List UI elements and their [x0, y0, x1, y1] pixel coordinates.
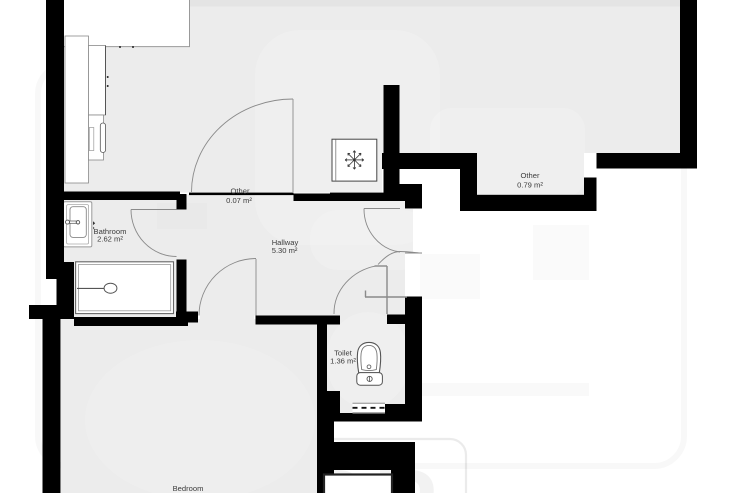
svg-text:0.07 m²: 0.07 m² [226, 196, 252, 205]
svg-text:0.79 m²: 0.79 m² [517, 181, 543, 190]
svg-text:5.30 m²: 5.30 m² [272, 246, 298, 255]
svg-text:Bedroom: Bedroom [173, 484, 204, 493]
svg-text:Other: Other [521, 171, 540, 180]
svg-text:Other: Other [231, 187, 250, 196]
svg-text:1.36 m²: 1.36 m² [330, 357, 356, 366]
svg-text:2.62 m²: 2.62 m² [97, 234, 123, 243]
